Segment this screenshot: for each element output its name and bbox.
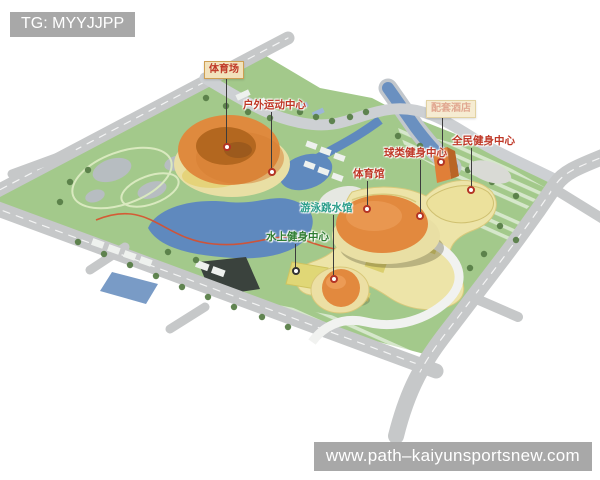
marker-dot: [223, 143, 231, 151]
leader-line: [367, 181, 368, 206]
label-stadium: 体育场: [204, 61, 244, 79]
leader-line: [295, 244, 296, 268]
label-faded-facility: 配套酒店: [426, 100, 476, 118]
label-public-fitness-center: 全民健身中心: [452, 135, 515, 148]
label-gymnasium: 体育馆: [353, 168, 385, 181]
leader-line: [271, 112, 272, 170]
website-watermark: www.path–kaiyunsportsnew.com: [314, 442, 592, 471]
screenshot: 体育场 户外运动中心 配套酒店 球类健身中心 全民健身中心 体育馆 游泳跳水馆 …: [0, 0, 600, 480]
telegram-watermark: TG: MYYJJPP: [10, 12, 135, 37]
marker-dot: [292, 267, 300, 275]
marker-dot: [330, 275, 338, 283]
label-water-fitness-center: 水上健身中心: [266, 231, 329, 244]
label-outdoor-sports-center: 户外运动中心: [243, 99, 306, 112]
leader-line: [420, 160, 421, 213]
marker-dot: [363, 205, 371, 213]
marker-dot: [467, 186, 475, 194]
label-ball-fitness-center: 球类健身中心: [384, 147, 447, 160]
leader-line: [226, 78, 227, 147]
leader-line: [333, 215, 334, 276]
marker-dot: [416, 212, 424, 220]
leader-line: [471, 148, 472, 187]
label-swimming-diving-hall: 游泳跳水馆: [300, 202, 353, 215]
marker-dot: [268, 168, 276, 176]
